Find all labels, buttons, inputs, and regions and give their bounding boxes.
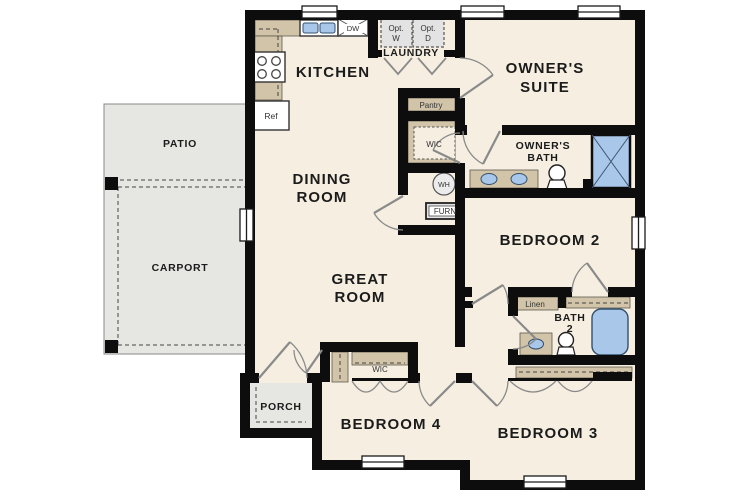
carport-post-bottom xyxy=(105,340,118,353)
owners-bath-toilet-bowl xyxy=(549,165,565,181)
great-room-label-1: GREAT xyxy=(332,271,389,288)
bedroom4-wic-label: WIC xyxy=(372,365,388,374)
optional-washer-label-2: W xyxy=(392,34,400,43)
dining-room-label-1: DINING xyxy=(292,171,351,188)
window-owners-suite-1 xyxy=(461,6,504,18)
laundry-label: LAUNDRY xyxy=(383,47,439,59)
window-bedroom2 xyxy=(632,217,645,249)
dining-room-label-2: ROOM xyxy=(296,189,347,206)
owners-bath-vanity xyxy=(470,170,538,188)
carport-post-top xyxy=(105,177,118,190)
stove xyxy=(252,52,285,82)
window-owners-suite-2 xyxy=(578,6,620,18)
bath2-label-2: 2 xyxy=(567,323,574,335)
owners-bath-label-2: BATH xyxy=(527,152,558,164)
floor-plan-canvas: PATIO CARPORT PORCH KITCHEN DINING ROOM … xyxy=(0,0,750,500)
optional-dryer-label-1: Opt. xyxy=(420,24,435,33)
kitchen-counter-top xyxy=(255,20,300,36)
owners-suite-label-2: SUITE xyxy=(520,79,570,96)
porch-label: PORCH xyxy=(260,401,301,413)
bath2-tub xyxy=(592,309,628,355)
owners-suite-label-1: OWNER'S xyxy=(506,60,585,77)
owners-wic-label: WIC xyxy=(426,140,442,149)
patio-label: PATIO xyxy=(163,138,197,150)
water-heater-label: WH xyxy=(438,182,450,189)
kitchen-label: KITCHEN xyxy=(296,64,370,81)
optional-washer-label-1: Opt. xyxy=(388,24,403,33)
kitchen-sink-basin-left xyxy=(303,23,318,33)
carport-label: CARPORT xyxy=(152,262,209,274)
bedroom2-label: BEDROOM 2 xyxy=(500,232,601,249)
owners-bath-sink-right xyxy=(511,174,527,185)
owners-bath-label-1: OWNER'S xyxy=(516,140,571,152)
optional-dryer-label-2: D xyxy=(425,34,431,43)
bedroom3-label: BEDROOM 3 xyxy=(498,425,599,442)
refrigerator-label: Ref xyxy=(264,111,278,121)
furnace-label: FURN xyxy=(434,207,456,216)
bath2-toilet-base xyxy=(557,347,575,355)
window-kitchen xyxy=(302,6,337,18)
great-room-label-2: ROOM xyxy=(334,289,385,306)
kitchen-sink-basin-right xyxy=(320,23,335,33)
window-dining xyxy=(240,209,253,241)
bedroom4-label: BEDROOM 4 xyxy=(341,416,442,433)
linen-label: Linen xyxy=(525,300,545,309)
dishwasher-label: DW xyxy=(347,24,360,33)
owners-bath-toilet-base xyxy=(547,180,567,189)
window-bedroom3 xyxy=(524,476,566,488)
floor-plan: PATIO CARPORT PORCH KITCHEN DINING ROOM … xyxy=(0,0,750,500)
window-bedroom4 xyxy=(362,456,404,468)
pantry-label: Pantry xyxy=(419,101,442,110)
owners-bath-sink-left xyxy=(481,174,497,185)
